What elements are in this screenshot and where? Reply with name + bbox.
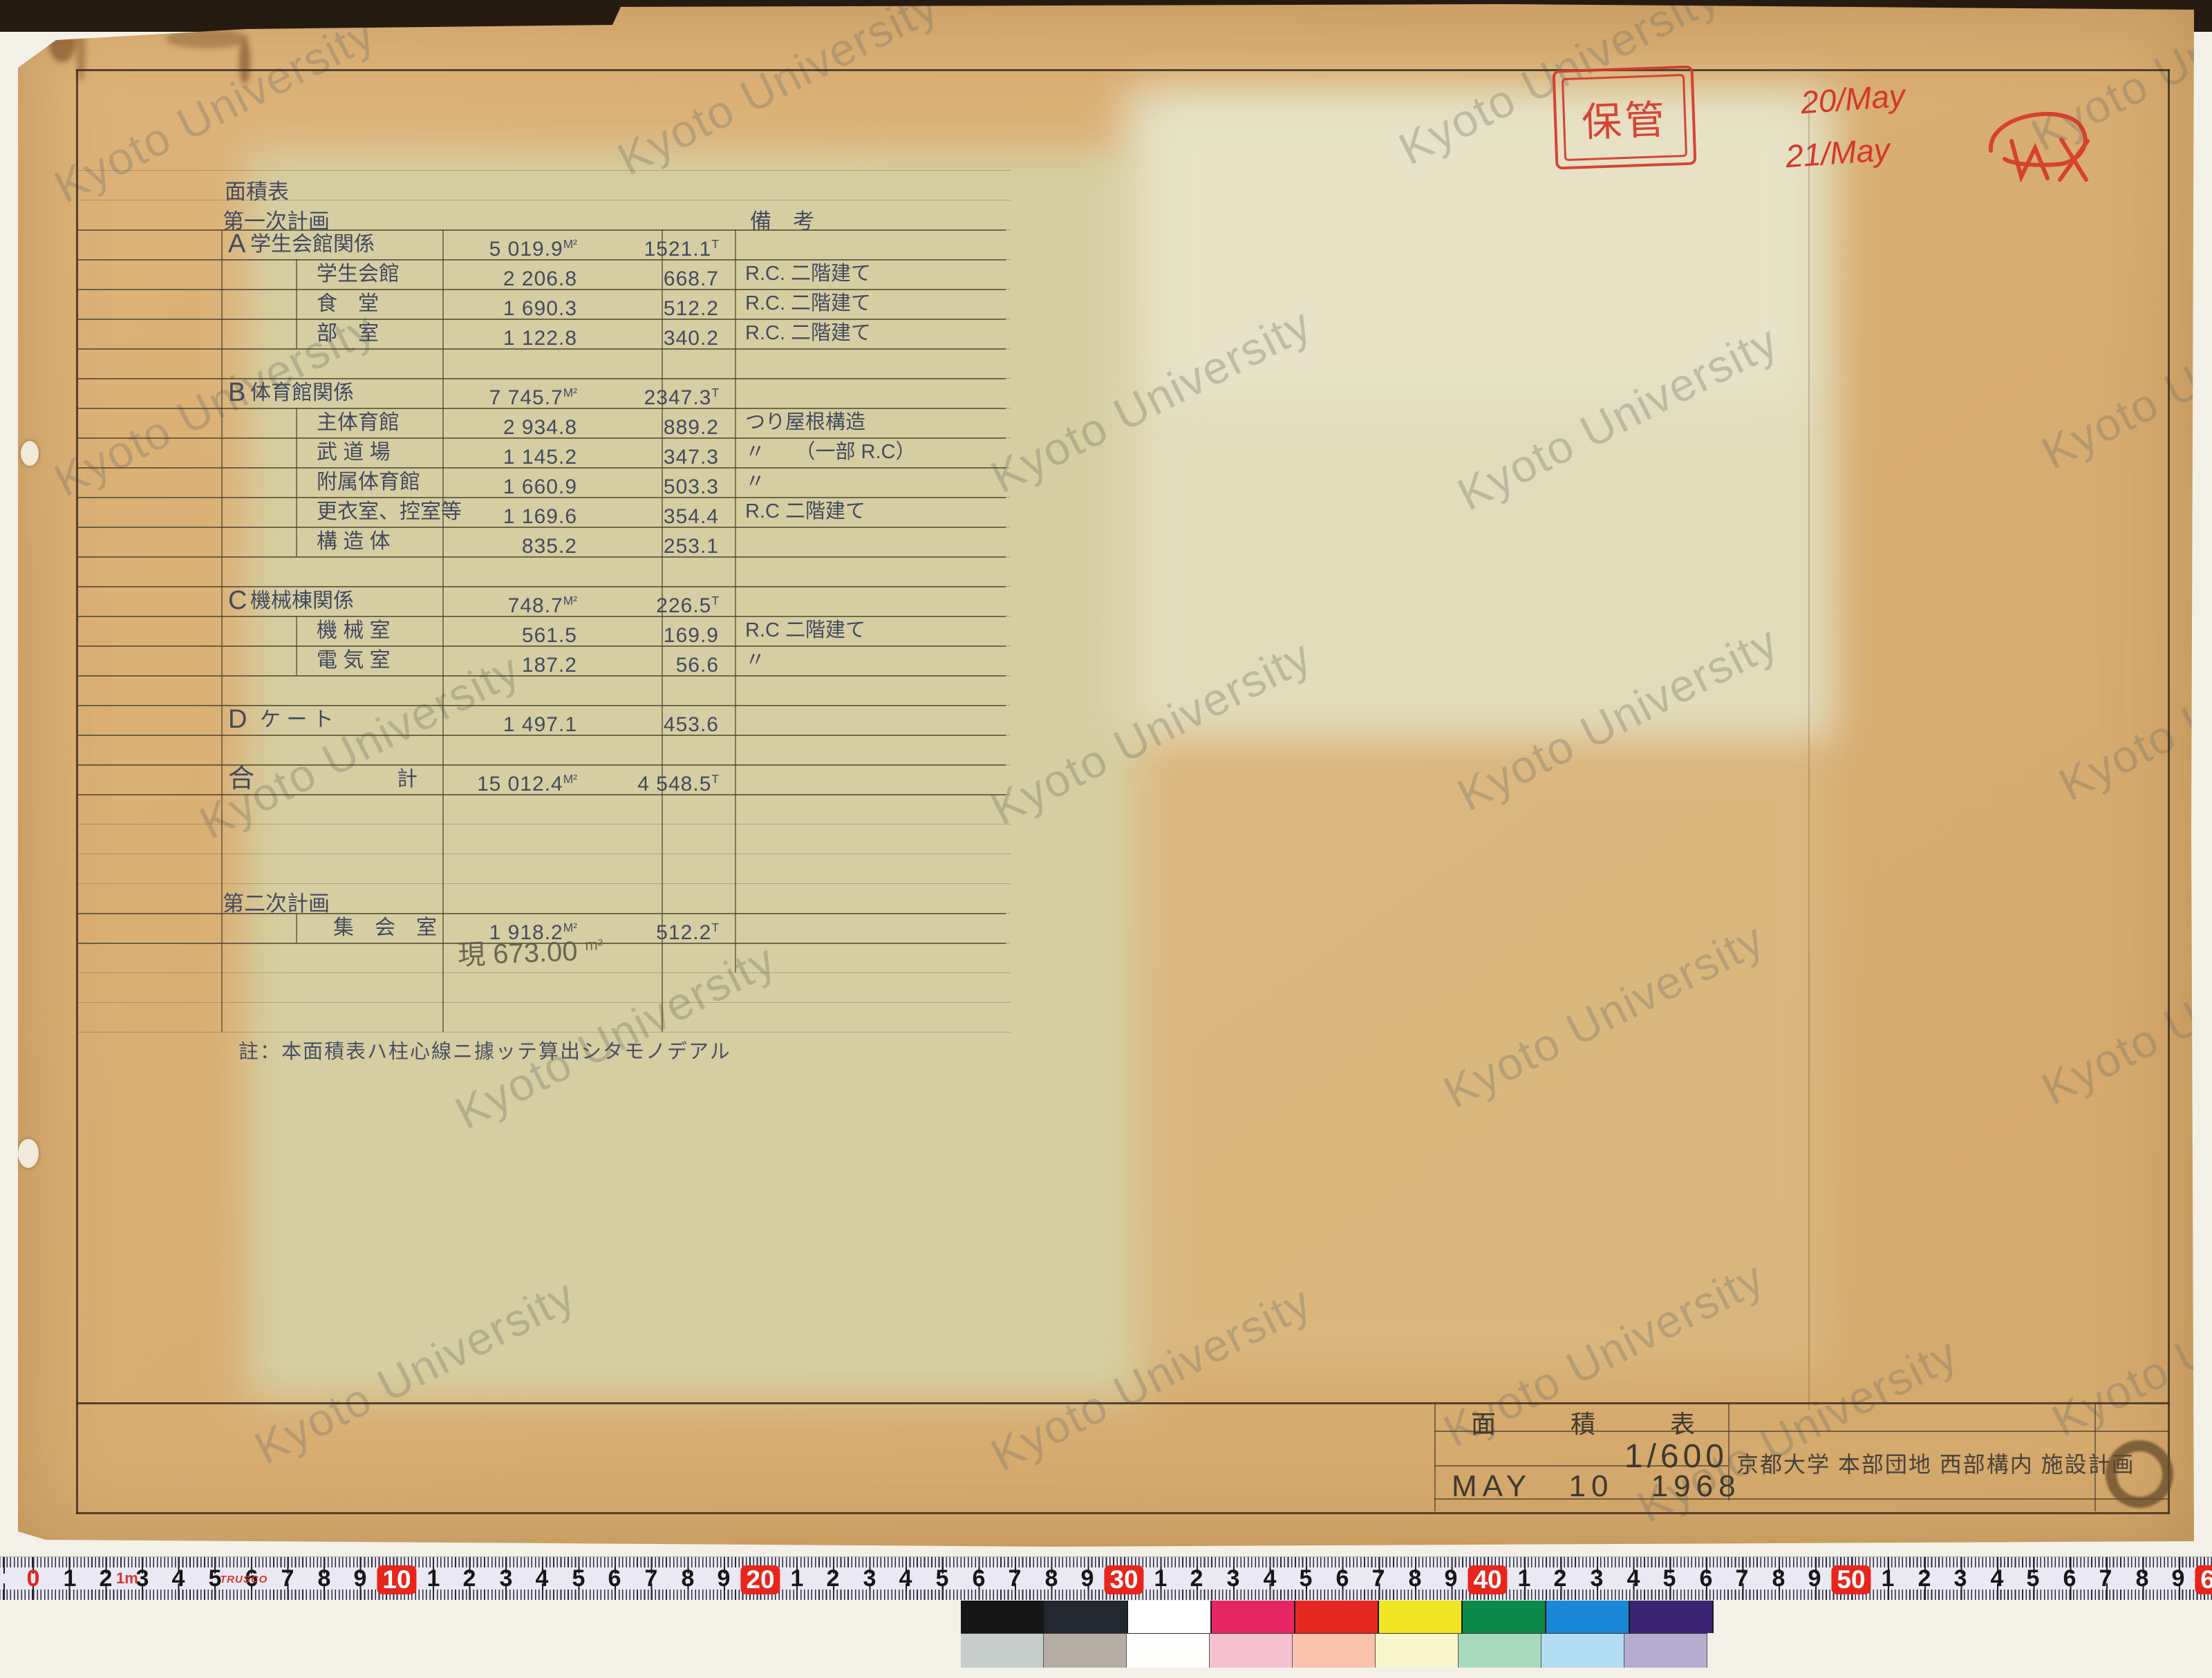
color-patch: [961, 1633, 1044, 1668]
ruler-number: 9: [1445, 1565, 1458, 1592]
paper-crease: [1808, 97, 1810, 1410]
color-patch: [1295, 1601, 1379, 1633]
ruler-number: 3: [500, 1565, 513, 1592]
ruler-number: 7: [1009, 1565, 1022, 1592]
area-tsubo-value: 226.5: [656, 594, 711, 617]
ruler-brand-label: TRUSCO: [220, 1574, 268, 1585]
frame-line-right: [2168, 69, 2170, 1514]
ruler-number: 8: [1045, 1565, 1058, 1592]
table-row: 附属体育館 1 660.9 503.3 〃: [221, 467, 1009, 497]
ruler-number: 8: [1409, 1565, 1422, 1592]
ruler-number: 2: [827, 1565, 840, 1592]
area-tsubo-value: 1521.1: [644, 238, 712, 261]
row-remarks: R.C. 二階建て: [745, 259, 871, 289]
ruler-number: 9: [1081, 1565, 1094, 1592]
color-patch: [1624, 1633, 1707, 1668]
table-row: C 機械棟関係 748.7M² 226.5T: [221, 586, 1009, 616]
area-tsubo-value: 889.2: [664, 416, 719, 439]
area-tsubo: 253.1: [363, 527, 719, 561]
kyoto-university-watermark: Kyoto University: [2050, 605, 2212, 811]
ruler-number: 8: [2136, 1565, 2149, 1592]
ruler-number: 2: [1918, 1565, 1931, 1592]
ruler-number: 50: [1831, 1565, 1871, 1594]
frame-line-inner-bottom: [76, 1402, 2170, 1404]
ruler-number: 7: [281, 1565, 294, 1592]
ruler-number: 2: [463, 1565, 476, 1592]
ruler-number: 8: [682, 1565, 695, 1592]
ruler-number: 8: [318, 1565, 331, 1592]
area-tsubo-value: 4 548.5: [637, 773, 711, 795]
table-row: 電 気 室 187.2 56.6 〃: [221, 645, 1009, 675]
project-name: 京都大学 本部団地 西部構内 施設計画: [1736, 1447, 2093, 1479]
title-block-title: 面積表: [1471, 1404, 1770, 1440]
color-patch: [1546, 1601, 1630, 1633]
area-tsubo-value: 2347.3: [644, 386, 712, 409]
color-patch: [1212, 1601, 1295, 1633]
row-remarks: R.C. 二階建て: [745, 319, 871, 348]
area-tsubo-value: 340.2: [664, 327, 719, 350]
color-patch: [1044, 1601, 1128, 1633]
table-row: B 体育館関係 7 745.7M² 2347.3T: [221, 378, 1009, 408]
ruler-number: 0: [27, 1565, 40, 1592]
area-tsubo: 453.6: [363, 705, 719, 739]
ruler-number: 8: [1772, 1565, 1785, 1592]
area-tsubo-value: 503.3: [664, 475, 719, 498]
area-tsubo: 340.2: [363, 319, 719, 353]
row-remarks: R.C. 二階建て: [745, 289, 871, 319]
table-row: 食 堂 1 690.3 512.2 R.C. 二階建て: [221, 289, 1009, 319]
color-patch: [1210, 1633, 1293, 1668]
kyoto-university-watermark: Kyoto University: [2033, 909, 2212, 1115]
area-tsubo-value: 453.6: [664, 713, 719, 736]
color-patch: [1044, 1633, 1127, 1668]
color-patch: [1293, 1633, 1376, 1668]
table-row: 主体育館 2 934.8 889.2 つり屋根構造: [221, 408, 1009, 437]
seal-ring-stamp: [2106, 1440, 2173, 1508]
scanned-drawing-sheet: Kyoto UniversityKyoto UniversityKyoto Un…: [0, 0, 2212, 1678]
ruler-number: 7: [1736, 1565, 1749, 1592]
color-patch: [1463, 1601, 1546, 1633]
area-tsubo-value: 512.2: [664, 297, 719, 320]
ruler-number: 4: [1264, 1565, 1277, 1592]
ruler-number: 1: [791, 1565, 804, 1592]
ruler-number: 3: [1954, 1565, 1967, 1592]
ruler-number: 4: [536, 1565, 549, 1592]
ruler-number: 10: [377, 1565, 416, 1594]
table-row: 更衣室、控室等 1 169.6 354.4 R.C 二階建て: [221, 497, 1009, 527]
ruler-number: 1: [1518, 1565, 1531, 1592]
paper-hole: [18, 1139, 39, 1168]
color-patch: [1459, 1633, 1541, 1668]
table-footnote: 註：本面積表ハ柱心線ニ據ッテ算出シタモノデアル: [238, 1035, 731, 1064]
kyoto-university-watermark: Kyoto University: [2033, 273, 2212, 480]
frame-line-top: [76, 69, 2170, 71]
ruler-number: 20: [740, 1565, 780, 1594]
row-remarks: 〃: [745, 645, 765, 675]
frame-line-bottom: [76, 1512, 2170, 1514]
color-bar-row-pastel: [961, 1633, 1714, 1668]
ruler-number: 5: [2027, 1565, 2040, 1592]
ruler-number: 5: [1663, 1565, 1676, 1592]
ruler-number: 40: [1468, 1565, 1507, 1594]
table-row: A 学生会館関係 5 019.9M² 1521.1T: [221, 229, 1009, 259]
color-patch: [1630, 1601, 1714, 1633]
ruler-number: 5: [936, 1565, 949, 1592]
table-row: 学生会館 2 206.8 668.7 R.C. 二階建て: [221, 259, 1009, 289]
ruler-number: 3: [863, 1565, 877, 1592]
ruler-number: 5: [572, 1565, 585, 1592]
table-row: 合 計 15 012.4M² 4 548.5T: [221, 764, 1009, 794]
area-tsubo-value: 354.4: [664, 505, 719, 528]
measuring-ruler: 0123456789101234567892012345678930123456…: [0, 1556, 2212, 1600]
ruler-number: 9: [354, 1565, 367, 1592]
area-tsubo-unit: T: [711, 594, 719, 607]
color-calibration-bar: [961, 1601, 1714, 1668]
area-tsubo-value: 56.6: [676, 654, 719, 677]
color-patch: [1127, 1633, 1210, 1668]
area-tsubo: 4 548.5T: [363, 764, 719, 799]
area-tsubo-value: 668.7: [664, 267, 719, 290]
row-remarks: R.C 二階建て: [745, 616, 865, 645]
color-patch: [1376, 1633, 1459, 1668]
ruler-number: 1: [1882, 1565, 1895, 1592]
color-bar-row-saturated: [961, 1601, 1714, 1633]
ruler-number: 7: [645, 1565, 658, 1592]
title-block-line: [1434, 1402, 1436, 1511]
table-title: 面積表: [225, 174, 289, 205]
row-remarks: 〃 （一部 R.C）: [745, 437, 916, 467]
pencil-value: 現 673.00: [457, 936, 578, 971]
ruler-number: 9: [2172, 1565, 2185, 1592]
date-annotation: 21/May: [1784, 131, 1891, 175]
color-patch: [1128, 1601, 1212, 1633]
ruler-number: 3: [1227, 1565, 1240, 1592]
storage-stamp: 保管: [1553, 65, 1697, 169]
ruler-meter-label: 1m: [116, 1569, 138, 1587]
ruler-number: 4: [899, 1565, 912, 1592]
color-patch: [961, 1601, 1044, 1633]
drawing-date: MAY 10 1968: [1452, 1469, 1741, 1504]
ruler-number: 1: [64, 1565, 77, 1592]
pencil-annotation: 現 673.00 m²: [457, 927, 603, 972]
table-row: D ケ ー ト 1 497.1 453.6: [221, 705, 1009, 735]
ruler-number: 6: [973, 1565, 986, 1592]
ruler-number: 1: [427, 1565, 440, 1592]
paper-hole: [21, 441, 39, 466]
area-tsubo-value: 253.1: [664, 535, 719, 558]
table-row: 武 道 場 1 145.2 347.3 〃 （一部 R.C）: [221, 437, 1009, 467]
row-remarks: R.C 二階建て: [745, 497, 865, 527]
table-row: 構 造 体 835.2 253.1: [221, 527, 1009, 556]
area-tsubo-value: 512.2: [656, 921, 711, 944]
ruler-number: 2: [1190, 1565, 1203, 1592]
stain: [166, 29, 249, 48]
row-remarks: つり屋根構造: [745, 408, 865, 437]
pencil-unit: m²: [585, 936, 603, 954]
ruler-number: 4: [1991, 1565, 2004, 1592]
ruler-number: 5: [1300, 1565, 1313, 1592]
area-tsubo-value: 347.3: [664, 446, 719, 469]
area-tsubo: 56.6: [363, 645, 719, 680]
area-tsubo-value: 169.9: [664, 624, 719, 647]
ruler-number: 2: [1554, 1565, 1567, 1592]
storage-stamp-text: 保管: [1562, 74, 1687, 161]
area-tsubo-unit: T: [711, 386, 719, 399]
ruler-number: 6: [1336, 1565, 1349, 1592]
ruler-number: 6: [1700, 1565, 1713, 1592]
ruler-number: 4: [172, 1565, 185, 1592]
area-tsubo-unit: T: [711, 237, 719, 251]
color-patch: [1541, 1633, 1624, 1668]
row-remarks: 〃: [745, 467, 765, 497]
ruler-number: 6: [608, 1565, 621, 1592]
area-tsubo-unit: T: [711, 921, 719, 934]
color-patch: [1379, 1601, 1463, 1633]
ruler-number: 2: [100, 1565, 113, 1592]
table-row: 集 会 室 1 918.2M² 512.2T: [221, 913, 1009, 943]
ruler-number: 60: [2195, 1565, 2212, 1594]
table-row: 部 室 1 122.8 340.2 R.C. 二階建て: [221, 319, 1009, 348]
ruler-number: 3: [1591, 1565, 1604, 1592]
ruler-number: 7: [2099, 1565, 2112, 1592]
ruler-number: 9: [1808, 1565, 1821, 1592]
ruler-number: 6: [2063, 1565, 2077, 1592]
ruler-number: 1: [1154, 1565, 1168, 1592]
ruler-number: 7: [1372, 1565, 1385, 1592]
date-annotation: 20/May: [1799, 77, 1906, 121]
ruler-number: 30: [1104, 1565, 1143, 1594]
signature-scribble: [1978, 95, 2103, 199]
ruler-number: 9: [718, 1565, 731, 1592]
stain: [239, 40, 250, 84]
area-tsubo-unit: T: [711, 772, 719, 786]
table-row: 機 械 室 561.5 169.9 R.C 二階建て: [221, 616, 1009, 645]
kyoto-university-watermark: Kyoto University: [2043, 1241, 2212, 1447]
ruler-number: 4: [1627, 1565, 1640, 1592]
